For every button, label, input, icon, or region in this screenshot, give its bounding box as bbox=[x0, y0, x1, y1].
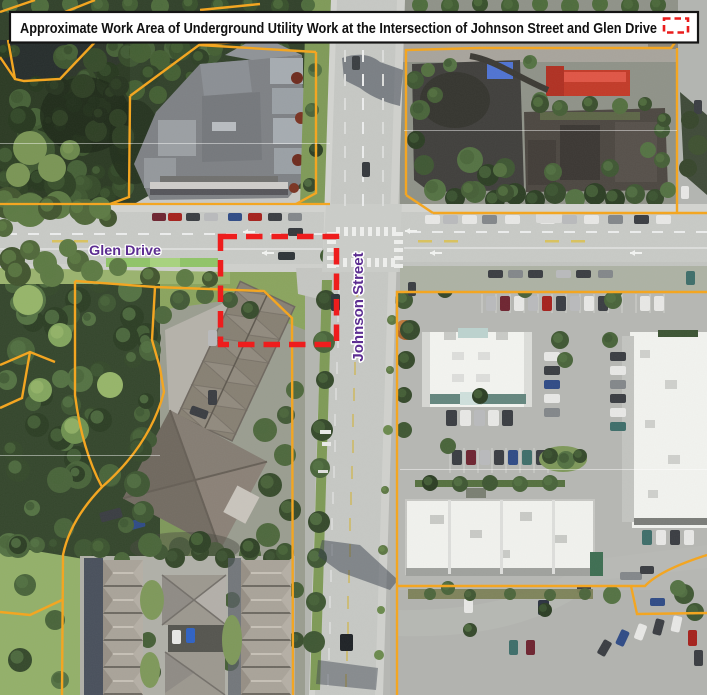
svg-text:Approximate Work Area of Under: Approximate Work Area of Underground Uti… bbox=[20, 20, 657, 37]
svg-text:Johnson Street: Johnson Street bbox=[350, 252, 367, 361]
svg-text:Glen Drive: Glen Drive bbox=[89, 242, 161, 258]
